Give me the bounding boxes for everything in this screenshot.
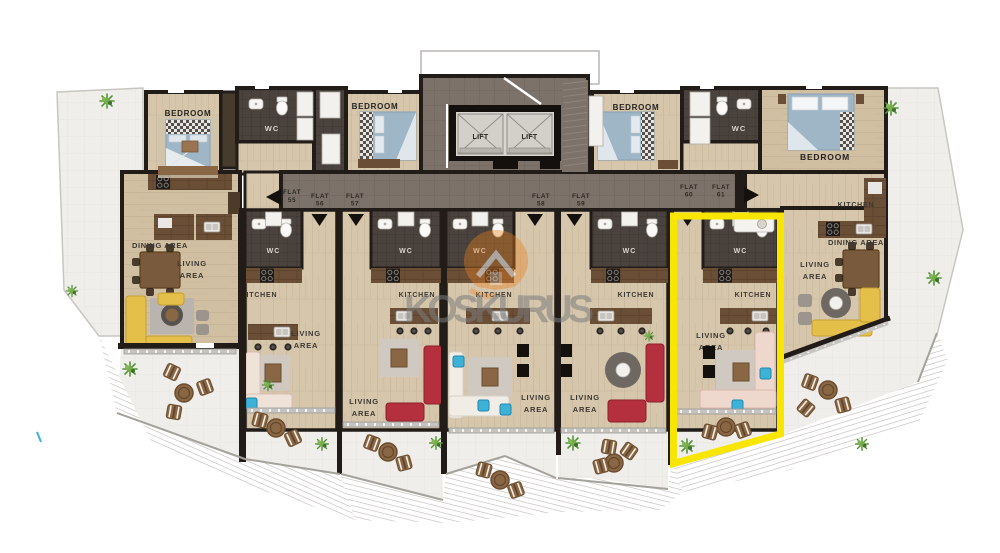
svg-text:WC: WC: [399, 248, 413, 255]
svg-text:BEDROOM: BEDROOM: [165, 109, 212, 118]
svg-text:FLAT: FLAT: [680, 184, 698, 191]
svg-text:LIVING: LIVING: [521, 393, 551, 402]
svg-text:57: 57: [351, 201, 359, 208]
svg-text:56: 56: [316, 201, 324, 208]
svg-text:LIVING: LIVING: [570, 393, 600, 402]
svg-text:KITCHEN: KITCHEN: [241, 292, 278, 299]
svg-text:WC: WC: [734, 248, 748, 255]
svg-text:AREA: AREA: [294, 341, 318, 350]
svg-text:LIFT: LIFT: [522, 134, 538, 141]
svg-text:KOSKURUS: KOSKURUS: [404, 288, 596, 331]
svg-text:KITCHEN: KITCHEN: [735, 292, 772, 299]
svg-text:LIVING: LIVING: [800, 260, 830, 269]
svg-text:WC: WC: [623, 248, 637, 255]
svg-text:DINING AREA: DINING AREA: [828, 238, 884, 247]
svg-text:LIVING: LIVING: [291, 329, 321, 338]
svg-text:WC: WC: [267, 248, 281, 255]
svg-text:KITCHEN: KITCHEN: [618, 292, 655, 299]
svg-text:FLAT: FLAT: [311, 193, 329, 200]
svg-text:FLAT: FLAT: [346, 193, 364, 200]
svg-text:LIVING: LIVING: [177, 259, 207, 268]
svg-text:AREA: AREA: [352, 409, 376, 418]
svg-text:59: 59: [577, 201, 585, 208]
svg-text:DINING AREA: DINING AREA: [132, 241, 188, 250]
svg-text:55: 55: [288, 197, 296, 204]
svg-text:AREA: AREA: [524, 405, 548, 414]
svg-text:AREA: AREA: [803, 272, 827, 281]
svg-text:FLAT: FLAT: [712, 184, 730, 191]
svg-text:AREA: AREA: [573, 405, 597, 414]
svg-text:FLAT: FLAT: [283, 189, 301, 196]
svg-text:FLAT: FLAT: [532, 193, 550, 200]
svg-text:60: 60: [685, 192, 693, 199]
svg-text:WC: WC: [265, 124, 280, 133]
svg-text:AREA: AREA: [180, 271, 204, 280]
svg-text:LIVING: LIVING: [696, 331, 726, 340]
svg-text:61: 61: [717, 192, 725, 199]
svg-text:KITCHEN: KITCHEN: [838, 202, 875, 209]
svg-text:58: 58: [537, 201, 545, 208]
svg-text:WC: WC: [732, 124, 747, 133]
svg-text:LIVING: LIVING: [349, 397, 379, 406]
svg-text:FLAT: FLAT: [572, 193, 590, 200]
svg-text:BEDROOM: BEDROOM: [613, 103, 660, 112]
svg-text:BEDROOM: BEDROOM: [352, 102, 399, 111]
svg-text:BEDROOM: BEDROOM: [800, 152, 850, 162]
svg-text:LIFT: LIFT: [473, 134, 489, 141]
